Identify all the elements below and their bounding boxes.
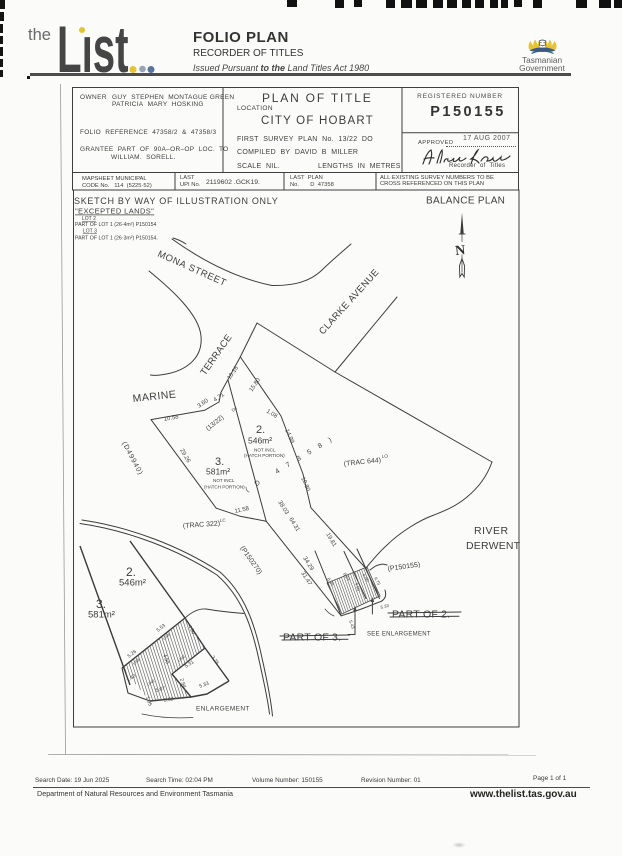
svg-text:5.31: 5.31 [184,659,196,669]
svg-text:(D49940): (D49940) [120,441,144,477]
svg-text:Do: Do [230,405,238,413]
svg-text:NOT INCL: NOT INCL [213,478,235,483]
svg-text:MARINE: MARINE [132,388,177,405]
svg-text:10.16: 10.16 [227,365,241,381]
svg-text:"EXCEPTED LANDS": "EXCEPTED LANDS" [75,207,154,216]
svg-text:PART OF LOT 1 (26·3m²) P150154: PART OF LOT 1 (26·3m²) P150154. [75,236,158,242]
svg-text:(HATCH PORTION): (HATCH PORTION) [244,453,285,458]
svg-text:SEE ENLARGEMENT: SEE ENLARGEMENT [367,632,431,638]
svg-text:PART OF 3.: PART OF 3. [283,632,341,644]
svg-text:5.33: 5.33 [163,696,174,704]
svg-text:LO: LO [382,453,389,459]
svg-text:4.90: 4.90 [354,582,361,592]
svg-text:ENLARGEMENT: ENLARGEMENT [196,706,250,713]
svg-text:5.53: 5.53 [156,623,168,634]
svg-text:34.29: 34.29 [301,556,314,572]
svg-text:N: N [454,243,466,259]
svg-text:(P150270): (P150270) [238,545,262,576]
svg-text:(HATCH PORTION): (HATCH PORTION) [204,485,245,490]
svg-text:10.80: 10.80 [299,476,311,493]
svg-text:PART OF LOT 1 (26·4m²) P150154: PART OF LOT 1 (26·4m²) P150154 [75,222,157,228]
svg-text:BALANCE PLAN: BALANCE PLAN [426,196,505,207]
svg-text:31.47: 31.47 [299,571,312,587]
svg-text:14.99: 14.99 [283,428,295,445]
svg-text:11.58: 11.58 [234,506,250,515]
svg-text:29.26: 29.26 [178,448,191,465]
svg-text:15.80: 15.80 [249,377,263,393]
svg-text:546m²: 546m² [248,436,272,446]
svg-text:4.90: 4.90 [361,573,370,583]
svg-text:581m²: 581m² [88,610,115,621]
svg-text:RIVER: RIVER [474,525,509,537]
svg-text:4.50: 4.50 [186,624,196,636]
svg-text:NOT INCL: NOT INCL [254,448,276,453]
svg-text:SKETCH BY WAY OF ILLUSTRATION: SKETCH BY WAY OF ILLUSTRATION ONLY [74,196,279,206]
svg-text:546m²: 546m² [119,578,146,589]
svg-text:LC: LC [220,518,227,523]
svg-text:(P150155): (P150155) [387,561,420,572]
svg-text:2.94: 2.94 [178,678,187,689]
svg-text:(TRAC 322): (TRAC 322) [183,520,221,530]
svg-text:4.90: 4.90 [161,654,170,665]
svg-text:MONA STREET: MONA STREET [156,249,228,289]
svg-text:CLARKE AVENUE: CLARKE AVENUE [317,267,382,337]
svg-text:(TRAC 644): (TRAC 644) [343,457,381,468]
svg-text:2.: 2. [256,424,265,436]
svg-text:5.33: 5.33 [199,681,210,690]
svg-text:9.75: 9.75 [373,576,382,586]
svg-text:581m²: 581m² [206,467,230,477]
svg-text:5.33: 5.33 [380,603,390,610]
svg-text:5.07: 5.07 [155,686,166,694]
svg-text:(13/22): (13/22) [205,414,225,432]
svg-text:3.25: 3.25 [209,655,220,667]
svg-text:10.58: 10.58 [163,414,179,423]
svg-text:LOT 3: LOT 3 [83,229,97,235]
svg-text:TERRACE: TERRACE [198,333,234,378]
svg-text:PART OF 2.: PART OF 2. [392,609,450,621]
svg-text:38.03: 38.03 [276,500,289,516]
svg-text:64.31: 64.31 [287,517,300,533]
svg-text:DERWENT: DERWENT [466,540,521,552]
